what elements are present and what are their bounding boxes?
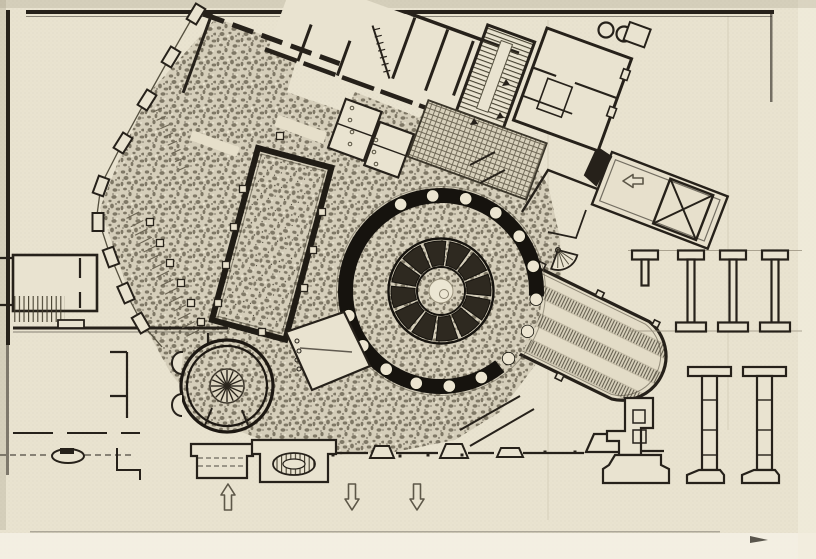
rotunda-column — [410, 377, 422, 389]
base-pier-base — [742, 470, 779, 483]
rotunda-column — [513, 230, 525, 242]
pool-column-square — [240, 186, 247, 193]
top-edge-shadow — [0, 0, 816, 8]
colonnade-column-square — [198, 319, 205, 326]
i-pier-top-flange — [762, 251, 788, 260]
stepped-base — [603, 455, 669, 483]
pool-column-square — [259, 329, 266, 336]
pool-column-square — [231, 224, 238, 231]
facade-tick — [544, 451, 547, 454]
facade-tick — [574, 451, 577, 454]
base-pier-stem — [702, 376, 717, 470]
rotunda-column — [460, 193, 472, 205]
scanned-plan-page — [0, 0, 816, 559]
facade-tick — [332, 454, 335, 457]
rotunda-column — [475, 371, 487, 383]
rotunda-column — [527, 260, 539, 272]
facade-tick — [427, 454, 430, 457]
i-pier-bottom-flange — [760, 323, 790, 332]
pool-column-square — [223, 262, 230, 269]
colonnade-column-square — [178, 280, 185, 287]
facade-tick — [461, 454, 464, 457]
colonnade-column-square — [188, 300, 195, 307]
pool-column-square — [277, 133, 284, 140]
pool-column-square — [301, 285, 308, 292]
i-pier-stem — [772, 260, 779, 323]
t-pier-stem — [642, 260, 649, 286]
base-pier-base — [687, 470, 724, 483]
colonnade-column-square — [167, 260, 174, 267]
facade-tick — [399, 455, 402, 458]
i-pier-bottom-flange — [676, 323, 706, 332]
i-pier-top-flange — [720, 251, 746, 260]
pool-column-square — [310, 247, 317, 254]
bottom-scan-margin — [0, 533, 816, 559]
rotunda-column — [502, 352, 514, 364]
left-edge-shadow — [0, 0, 6, 530]
floor-plan-drawing — [0, 0, 816, 559]
i-pier-stem — [688, 260, 695, 323]
rotunda-column — [443, 380, 455, 392]
base-pier-stem — [757, 376, 772, 470]
rotunda-column — [530, 293, 542, 305]
base-pier-flange — [688, 367, 731, 376]
colonnade-column-square — [157, 240, 164, 247]
right-scan-margin — [798, 0, 816, 559]
rotunda-column — [394, 198, 406, 210]
rotunda-column — [380, 363, 392, 375]
i-pier-bottom-flange — [718, 323, 748, 332]
rotunda-column — [490, 207, 502, 219]
base-pier-flange — [743, 367, 786, 376]
rotunda-column — [426, 190, 438, 202]
stair-core — [224, 383, 230, 389]
boundary-block — [93, 213, 104, 231]
colonnade-column-square — [147, 219, 154, 226]
small-rotunda — [181, 340, 273, 432]
t-pier-flange — [632, 251, 658, 260]
pool-column-square — [319, 209, 326, 216]
pool-column-square — [215, 300, 222, 307]
rotunda-column — [521, 325, 533, 337]
i-pier-stem — [730, 260, 737, 323]
i-pier-top-flange — [678, 251, 704, 260]
